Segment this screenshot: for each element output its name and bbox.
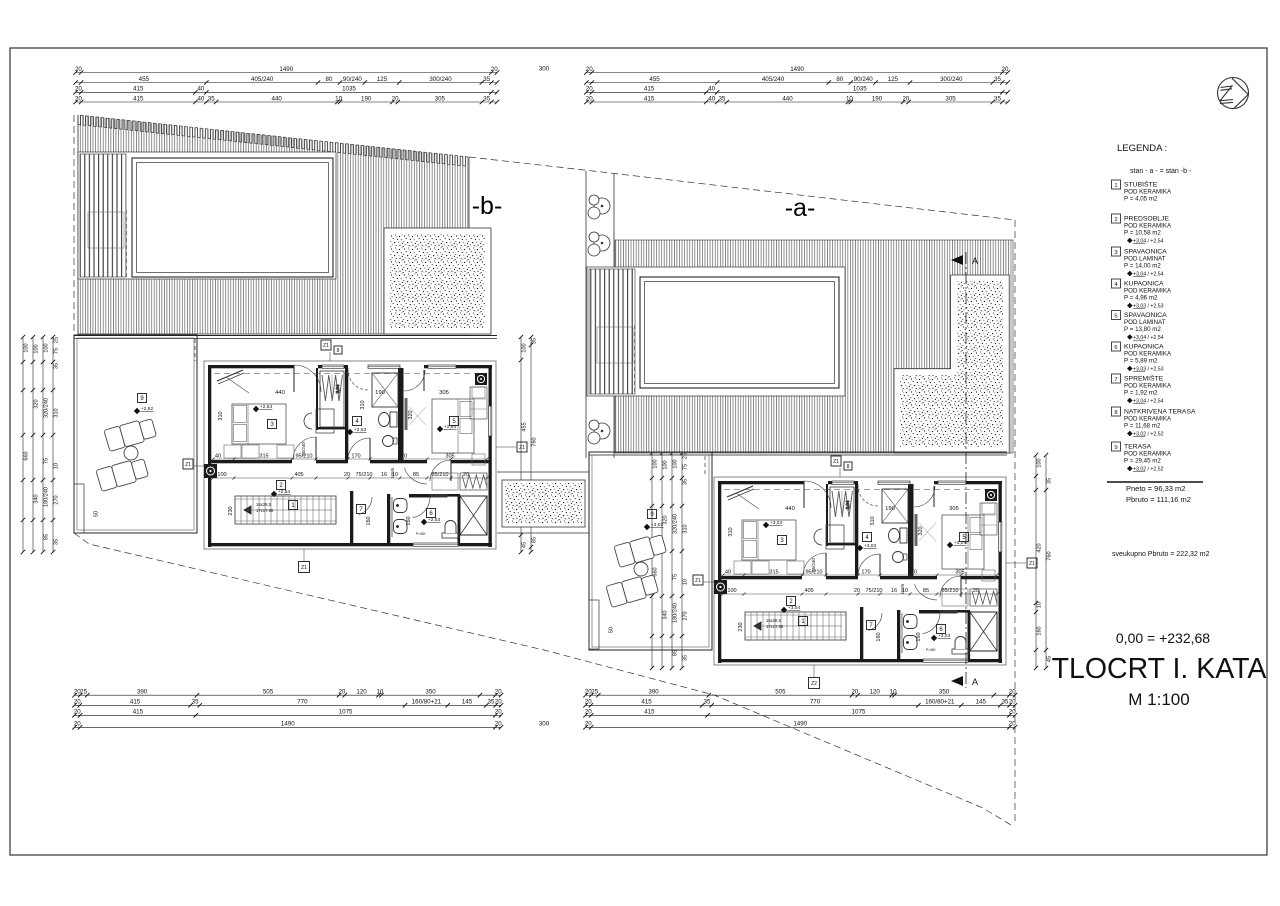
svg-text:1035: 1035 — [342, 86, 356, 93]
svg-text:1490: 1490 — [793, 721, 807, 728]
svg-text:17x17,88: 17x17,88 — [256, 508, 274, 513]
svg-text:770: 770 — [297, 699, 308, 706]
svg-text:95/240: 95/240 — [811, 558, 816, 572]
svg-text:160/80+21: 160/80+21 — [925, 699, 955, 706]
svg-text:+2,54: +2,54 — [260, 404, 272, 410]
svg-text:440: 440 — [782, 95, 793, 102]
svg-text:80: 80 — [326, 76, 333, 83]
svg-text:310: 310 — [683, 524, 689, 533]
svg-text:85: 85 — [923, 588, 929, 594]
svg-text:20: 20 — [338, 689, 345, 696]
svg-text:35: 35 — [719, 95, 726, 102]
svg-text:Z1: Z1 — [519, 445, 525, 451]
svg-text:85: 85 — [44, 534, 50, 540]
svg-text:P = 13,80 m2: P = 13,80 m2 — [1124, 326, 1161, 333]
svg-text:Z2: Z2 — [811, 681, 817, 687]
svg-text:35: 35 — [994, 95, 1001, 102]
svg-text:100: 100 — [663, 460, 669, 469]
svg-text:300: 300 — [539, 721, 550, 728]
svg-text:+3,03: +3,03 — [864, 543, 876, 549]
svg-text:P=85!: P=85! — [926, 648, 936, 652]
svg-text:35: 35 — [54, 363, 60, 369]
svg-text:+3,03: +3,03 — [938, 633, 950, 639]
svg-text:145: 145 — [462, 699, 473, 706]
svg-text:40: 40 — [197, 86, 204, 93]
svg-text:75: 75 — [673, 574, 679, 580]
svg-text:100: 100 — [1037, 458, 1043, 467]
svg-text:35: 35 — [532, 338, 538, 344]
svg-text:660: 660 — [653, 567, 659, 576]
svg-text:16: 16 — [891, 588, 897, 594]
svg-text:10: 10 — [683, 579, 689, 585]
svg-text:A: A — [972, 256, 978, 266]
svg-text:P = 4,96 m2: P = 4,96 m2 — [1124, 295, 1158, 302]
svg-text:305: 305 — [435, 95, 446, 102]
svg-text:2: 2 — [1114, 217, 1117, 223]
svg-text:1075: 1075 — [852, 709, 866, 716]
svg-text:1035: 1035 — [853, 86, 867, 93]
svg-text:10: 10 — [335, 95, 342, 102]
svg-text:455: 455 — [139, 76, 150, 83]
svg-text:505: 505 — [263, 689, 274, 696]
svg-text:POD KERAMIKA: POD KERAMIKA — [1124, 288, 1172, 295]
svg-text:440: 440 — [785, 506, 795, 512]
svg-text:+3,04: +3,04 — [770, 520, 782, 526]
svg-text:415: 415 — [130, 699, 141, 706]
svg-text:415: 415 — [641, 699, 652, 706]
svg-text:16x28,5: 16x28,5 — [766, 618, 782, 623]
svg-text:2,04: 2,04 — [845, 500, 850, 509]
svg-text:stan - a - = stan -b -: stan - a - = stan -b - — [1130, 168, 1192, 175]
svg-text:305: 305 — [949, 506, 959, 512]
svg-text:TERASA: TERASA — [1124, 444, 1152, 451]
svg-text:3: 3 — [1114, 250, 1117, 256]
svg-text:1075: 1075 — [339, 709, 353, 716]
svg-text:305: 305 — [439, 390, 449, 396]
svg-text:100: 100 — [653, 459, 659, 468]
svg-text:/ +2,54: / +2,54 — [1148, 399, 1164, 405]
svg-text:/ +2,52: / +2,52 — [1148, 467, 1164, 473]
svg-text:+2,53: +2,53 — [354, 427, 366, 433]
svg-text:120: 120 — [356, 689, 367, 696]
svg-text:760: 760 — [532, 437, 538, 446]
svg-text:320: 320 — [663, 515, 669, 524]
svg-text:+2,53: +2,53 — [428, 517, 440, 523]
svg-text:100: 100 — [673, 459, 679, 468]
svg-text:415: 415 — [133, 709, 144, 716]
svg-text:75: 75 — [683, 464, 689, 470]
svg-text:POD LAMINAT: POD LAMINAT — [1124, 256, 1166, 263]
svg-text:20: 20 — [851, 689, 858, 696]
svg-text:420: 420 — [1037, 543, 1043, 552]
svg-text:310: 310 — [728, 527, 734, 536]
svg-text:100: 100 — [24, 343, 30, 352]
svg-text:300/240: 300/240 — [940, 76, 963, 83]
svg-text:35: 35 — [483, 95, 490, 102]
svg-text:8: 8 — [847, 464, 850, 470]
svg-text:35: 35 — [192, 699, 199, 706]
svg-text:270: 270 — [683, 611, 689, 620]
svg-text:90/240: 90/240 — [854, 76, 873, 83]
svg-text:170: 170 — [351, 454, 360, 460]
svg-text:455: 455 — [649, 76, 660, 83]
svg-text:75: 75 — [54, 348, 60, 354]
svg-text:25: 25 — [591, 689, 598, 696]
svg-text:35: 35 — [683, 655, 689, 661]
svg-text:35: 35 — [483, 76, 490, 83]
svg-text:35: 35 — [1047, 478, 1053, 484]
svg-text:+3,02: +3,02 — [651, 522, 663, 528]
svg-text:P = 4,05 m2: P = 4,05 m2 — [1124, 196, 1158, 203]
svg-text:10: 10 — [846, 95, 853, 102]
svg-text:85: 85 — [413, 472, 419, 478]
svg-text:A: A — [972, 677, 978, 687]
svg-text:NATKRIVENA TERASA: NATKRIVENA TERASA — [1124, 409, 1196, 416]
svg-text:POD KERAMIKA: POD KERAMIKA — [1124, 451, 1172, 458]
svg-text:16x28,5: 16x28,5 — [256, 502, 272, 507]
svg-text:305: 305 — [955, 570, 964, 576]
svg-text:80: 80 — [836, 76, 843, 83]
svg-text:70: 70 — [911, 570, 917, 576]
svg-text:PREDSOBLJE: PREDSOBLJE — [1124, 216, 1169, 223]
svg-text:25: 25 — [80, 689, 87, 696]
svg-text:190: 190 — [361, 95, 372, 102]
svg-text:160: 160 — [366, 516, 372, 525]
svg-text:/ +2,54: / +2,54 — [1148, 239, 1164, 245]
svg-text:760: 760 — [1047, 551, 1053, 560]
svg-text:405/240: 405/240 — [762, 76, 785, 83]
svg-text:415: 415 — [644, 709, 655, 716]
svg-text:45: 45 — [522, 542, 528, 548]
svg-text:310: 310 — [218, 411, 224, 420]
svg-text:Pbruto = 111,16 m2: Pbruto = 111,16 m2 — [1126, 495, 1191, 504]
svg-text:90/240: 90/240 — [343, 76, 362, 83]
svg-text:415: 415 — [644, 95, 655, 102]
svg-text:+3,04: +3,04 — [954, 540, 966, 546]
svg-text:50: 50 — [609, 627, 615, 633]
svg-text:100: 100 — [34, 344, 40, 353]
svg-text:75/210: 75/210 — [865, 588, 882, 594]
svg-text:340: 340 — [663, 610, 669, 619]
svg-text:10: 10 — [376, 689, 383, 696]
svg-text:1490: 1490 — [279, 66, 293, 73]
svg-text:Z1: Z1 — [301, 565, 307, 571]
svg-text:770: 770 — [810, 699, 821, 706]
svg-text:350: 350 — [425, 689, 436, 696]
svg-text:310: 310 — [54, 408, 60, 417]
svg-text:100: 100 — [727, 588, 736, 594]
svg-text:5: 5 — [1114, 314, 1117, 320]
svg-text:P = 5,89 m2: P = 5,89 m2 — [1124, 358, 1158, 365]
svg-text:120: 120 — [870, 689, 881, 696]
svg-text:160: 160 — [876, 632, 882, 641]
svg-text:310: 310 — [870, 516, 876, 525]
svg-text:100/5: 100/5 — [900, 583, 905, 594]
svg-text:P = 29,45 m2: P = 29,45 m2 — [1124, 458, 1161, 465]
svg-text:sveukupno Pbruto = 222,32 m2: sveukupno Pbruto = 222,32 m2 — [1112, 551, 1210, 558]
svg-text:KUPAONICA: KUPAONICA — [1124, 344, 1164, 351]
svg-text:100: 100 — [44, 343, 50, 352]
svg-text:6: 6 — [1114, 345, 1117, 351]
svg-text:405: 405 — [804, 588, 813, 594]
svg-text:SPAVAONICA: SPAVAONICA — [1124, 249, 1167, 256]
svg-text:8: 8 — [337, 348, 340, 354]
svg-text:305: 305 — [445, 454, 454, 460]
svg-text:320/240: 320/240 — [44, 398, 50, 418]
svg-text:415: 415 — [644, 86, 655, 93]
svg-text:230: 230 — [228, 506, 234, 515]
svg-text:190: 190 — [872, 95, 883, 102]
svg-text:40: 40 — [197, 95, 204, 102]
svg-text:POD KERAMIKA: POD KERAMIKA — [1124, 383, 1172, 390]
svg-text:-b-: -b- — [472, 192, 503, 220]
svg-text:340: 340 — [34, 494, 40, 503]
svg-text:405: 405 — [294, 472, 303, 478]
svg-text:17x17,88: 17x17,88 — [766, 624, 784, 629]
svg-text:35: 35 — [1001, 699, 1008, 706]
svg-text:415: 415 — [133, 95, 144, 102]
svg-text:35: 35 — [683, 479, 689, 485]
svg-text:16: 16 — [381, 472, 387, 478]
svg-text:P=85!: P=85! — [416, 532, 426, 536]
svg-text:1490: 1490 — [790, 66, 804, 73]
svg-text:Z1: Z1 — [833, 459, 839, 465]
svg-text:300/240: 300/240 — [429, 76, 452, 83]
svg-text:10: 10 — [890, 689, 897, 696]
svg-text:660: 660 — [24, 451, 30, 460]
svg-text:320: 320 — [918, 526, 924, 535]
svg-text:310: 310 — [360, 400, 366, 409]
svg-text:300: 300 — [539, 66, 550, 73]
svg-text:SPAVAONICA: SPAVAONICA — [1124, 312, 1167, 319]
svg-text:95/240: 95/240 — [301, 442, 306, 456]
svg-text:160: 160 — [406, 516, 412, 525]
svg-text:315: 315 — [769, 570, 778, 576]
svg-text:180/240: 180/240 — [44, 487, 50, 507]
svg-text:415: 415 — [133, 86, 144, 93]
svg-text:75/210: 75/210 — [355, 472, 372, 478]
svg-text:390: 390 — [648, 689, 659, 696]
svg-text:1: 1 — [1114, 183, 1117, 189]
svg-text:SPREMIŠTE: SPREMIŠTE — [1124, 374, 1164, 383]
svg-text:40: 40 — [708, 86, 715, 93]
svg-text:160/80+21: 160/80+21 — [412, 699, 442, 706]
svg-text:LEGENDA :: LEGENDA : — [1117, 143, 1167, 154]
svg-text:70: 70 — [401, 454, 407, 460]
svg-text:160: 160 — [916, 632, 922, 641]
svg-text:125: 125 — [888, 76, 899, 83]
svg-text:100: 100 — [522, 343, 528, 352]
svg-text:+2,54: +2,54 — [278, 489, 290, 495]
svg-text:440: 440 — [272, 95, 283, 102]
svg-text:Pneto = 96,33 m2: Pneto = 96,33 m2 — [1126, 484, 1185, 493]
svg-text:85: 85 — [673, 650, 679, 656]
svg-text:440: 440 — [275, 390, 285, 396]
svg-text:TLOCRT I. KATA: TLOCRT I. KATA — [1052, 653, 1267, 685]
svg-text:7: 7 — [1114, 377, 1117, 383]
svg-text:320/240: 320/240 — [673, 514, 679, 534]
svg-text:405/240: 405/240 — [251, 76, 274, 83]
svg-text:35: 35 — [704, 699, 711, 706]
svg-text:2,04: 2,04 — [335, 384, 340, 393]
svg-text:Z1: Z1 — [323, 343, 329, 349]
svg-text:145: 145 — [976, 699, 987, 706]
svg-text:305: 305 — [945, 95, 956, 102]
svg-text:270: 270 — [54, 495, 60, 504]
svg-text:9: 9 — [1114, 445, 1117, 451]
svg-text:230: 230 — [738, 622, 744, 631]
svg-text:190: 190 — [885, 506, 895, 512]
svg-text:POD KERAMIKA: POD KERAMIKA — [1124, 189, 1172, 196]
svg-text:P = 1,92 m2: P = 1,92 m2 — [1124, 390, 1158, 397]
svg-text:10: 10 — [1037, 602, 1043, 608]
svg-text:8: 8 — [1114, 410, 1117, 416]
svg-text:75: 75 — [44, 458, 50, 464]
svg-text:320: 320 — [34, 399, 40, 408]
svg-text:350: 350 — [939, 689, 950, 696]
svg-text:455: 455 — [522, 422, 528, 431]
svg-text:+3,04: +3,04 — [788, 605, 800, 611]
svg-text:0,00 = +232,68: 0,00 = +232,68 — [1116, 630, 1210, 646]
svg-text:POD LAMINAT: POD LAMINAT — [1124, 319, 1166, 326]
svg-text:/ +2,54: / +2,54 — [1148, 335, 1164, 341]
svg-text:P = 11,68 m2: P = 11,68 m2 — [1124, 423, 1161, 430]
svg-text:40: 40 — [725, 570, 731, 576]
svg-text:-a-: -a- — [785, 194, 816, 222]
svg-text:M 1:100: M 1:100 — [1128, 690, 1189, 709]
svg-text:190: 190 — [375, 390, 385, 396]
svg-text:25: 25 — [54, 337, 60, 343]
svg-text:160: 160 — [1037, 626, 1043, 635]
svg-text:315: 315 — [259, 454, 268, 460]
svg-text:POD KERAMIKA: POD KERAMIKA — [1124, 351, 1172, 358]
svg-text:+2,54: +2,54 — [444, 424, 456, 430]
svg-text:505: 505 — [775, 689, 786, 696]
svg-text:390: 390 — [137, 689, 148, 696]
svg-text:P = 14,00 m2: P = 14,00 m2 — [1124, 263, 1161, 270]
svg-text:Z1: Z1 — [695, 578, 701, 584]
svg-text:Z1: Z1 — [1029, 561, 1035, 567]
svg-text:POD KERAMIKA: POD KERAMIKA — [1124, 416, 1172, 423]
svg-text:P = 10,58 m2: P = 10,58 m2 — [1124, 230, 1161, 237]
svg-text:/ +2,52: / +2,52 — [1148, 432, 1164, 438]
svg-text:1490: 1490 — [281, 721, 295, 728]
svg-text:25: 25 — [683, 453, 689, 459]
svg-text:Z1: Z1 — [185, 462, 191, 468]
svg-text:/ +2,53: / +2,53 — [1148, 367, 1164, 373]
svg-text:125: 125 — [377, 76, 388, 83]
svg-text:50: 50 — [94, 511, 100, 517]
svg-text:170: 170 — [861, 570, 870, 576]
svg-text:10: 10 — [54, 463, 60, 469]
svg-text:320: 320 — [408, 410, 414, 419]
svg-text:/ +2,53: / +2,53 — [1148, 304, 1164, 310]
svg-text:+2,52: +2,52 — [141, 406, 153, 412]
svg-text:35: 35 — [994, 76, 1001, 83]
svg-text:85: 85 — [532, 537, 538, 543]
svg-text:40: 40 — [215, 454, 221, 460]
svg-text:35: 35 — [208, 95, 215, 102]
svg-text:KUPAONICA: KUPAONICA — [1124, 281, 1164, 288]
svg-text:35: 35 — [54, 539, 60, 545]
svg-text:/ +2,54: / +2,54 — [1148, 272, 1164, 278]
svg-text:180/240: 180/240 — [673, 603, 679, 623]
svg-text:40: 40 — [708, 95, 715, 102]
svg-text:POD KERAMIKA: POD KERAMIKA — [1124, 223, 1172, 230]
svg-text:100: 100 — [217, 472, 226, 478]
svg-text:STUBIŠTE: STUBIŠTE — [1124, 180, 1158, 189]
svg-text:100/5: 100/5 — [390, 467, 395, 478]
